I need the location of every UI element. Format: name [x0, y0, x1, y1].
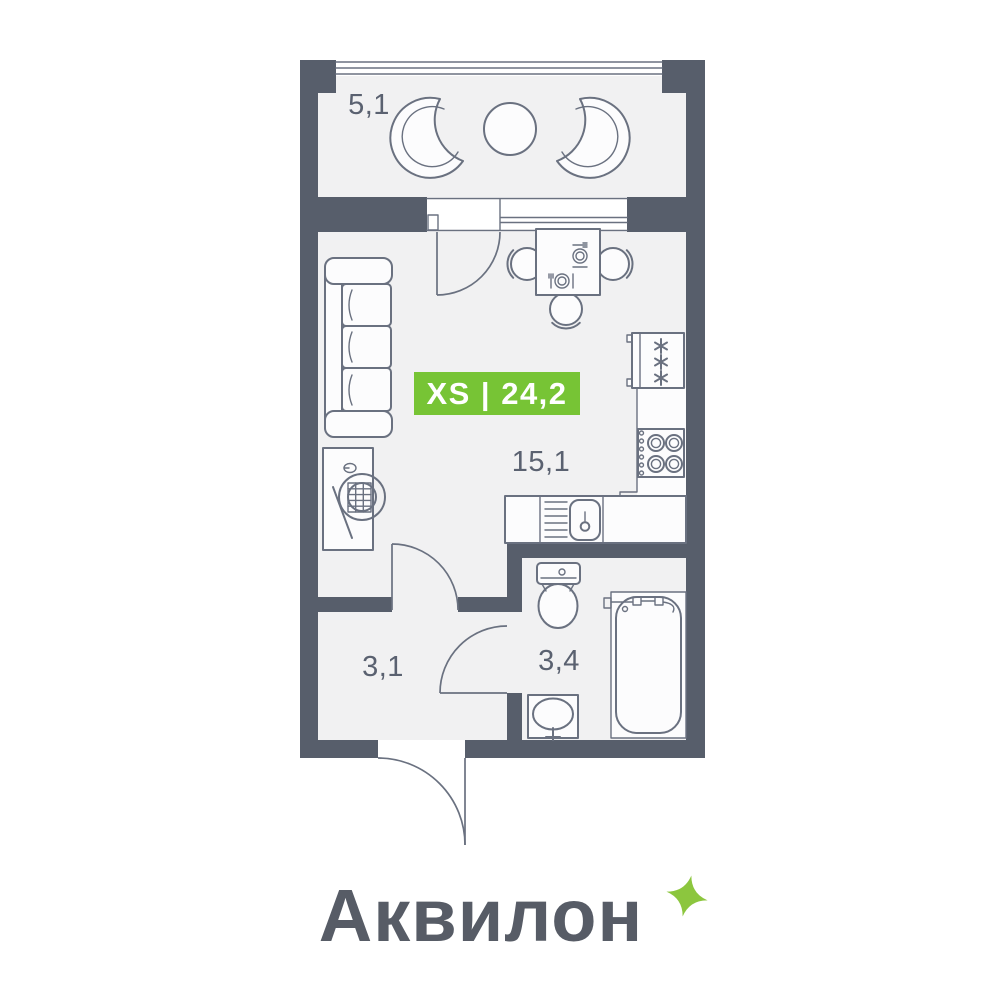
wall-balcony-right — [627, 197, 686, 232]
area-badge-label: XS | 24,2 — [426, 376, 567, 411]
bathroom-area-label: 3,4 — [538, 645, 580, 677]
wall-hall-left — [318, 597, 392, 612]
wall-bathroom-top — [507, 543, 686, 558]
living-area-label: 15,1 — [512, 446, 570, 478]
stove-icon — [638, 429, 684, 477]
window-band — [427, 197, 627, 232]
area-badge: XS | 24,2 — [414, 372, 580, 415]
wall-bathroom-left-upper — [507, 558, 522, 612]
bathtub-icon — [604, 592, 686, 738]
wall-left — [300, 60, 318, 758]
entry-opening — [378, 740, 465, 758]
balcony-table-icon — [484, 103, 536, 155]
toilet-icon — [537, 563, 580, 628]
wall-bottom-right — [465, 740, 686, 758]
wall-bottom-left — [318, 740, 378, 758]
wall-bathroom-left-lower — [507, 693, 522, 740]
wall-right — [686, 60, 705, 758]
sparkle-icon — [662, 871, 712, 921]
sofa-icon — [325, 258, 392, 437]
wall-corner-top-left — [300, 60, 336, 93]
fridge-icon — [627, 333, 684, 388]
entry-door — [378, 758, 465, 845]
logo: Аквилон — [319, 871, 712, 957]
floor-plan-page: 5,1 15,1 3,1 3,4 XS | 24,2 Аквилон — [0, 0, 1000, 1000]
washbasin-icon — [528, 695, 578, 740]
floor-plan-svg: 5,1 15,1 3,1 3,4 XS | 24,2 Аквилон — [0, 0, 1000, 1000]
wall-balcony-left — [318, 197, 427, 232]
balcony-area-label: 5,1 — [348, 89, 390, 121]
hallway-area-label: 3,1 — [362, 651, 404, 683]
wall-corner-top-right — [662, 60, 705, 93]
logo-wordmark: Аквилон — [319, 874, 643, 957]
